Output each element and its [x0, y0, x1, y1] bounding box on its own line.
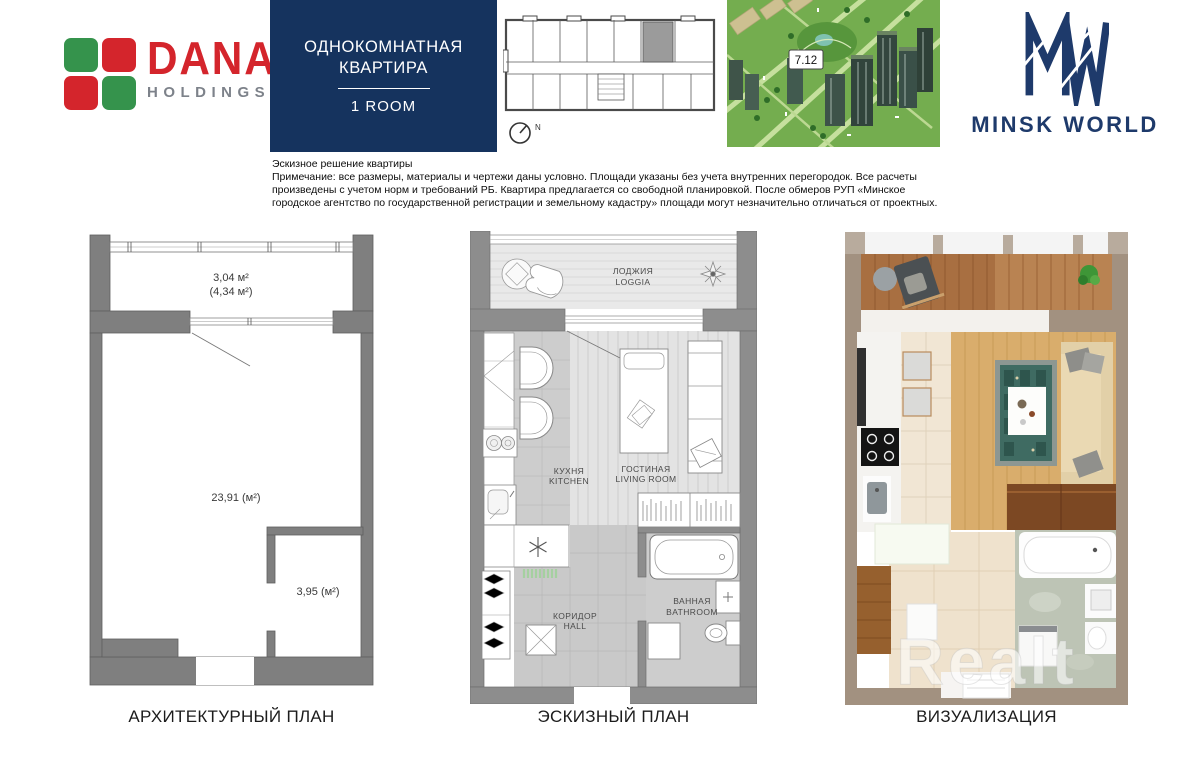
door-swing	[192, 333, 250, 366]
fridge-counter	[484, 525, 569, 567]
compass-north-label: N	[535, 123, 541, 132]
district-aerial-render: 7.12	[727, 0, 940, 147]
highlighted-unit	[643, 22, 673, 62]
flat-datasheet: DANA HOLDINGS ОДНОКОМНАТНАЯ КВАРТИРА 1 R…	[0, 0, 1197, 757]
bed	[620, 349, 668, 453]
mw-monogram-icon	[1021, 12, 1109, 106]
bathroom-label-ru: ВАННАЯ	[673, 596, 711, 606]
bathroom-area-value: 3,95 (м²)	[296, 586, 339, 598]
hall-label-en: HALL	[564, 621, 587, 631]
building-floor-plan: N	[503, 10, 722, 150]
balcony-window	[565, 316, 703, 323]
bathroom-washer	[648, 623, 680, 659]
kitchen-sink	[857, 466, 901, 532]
bathroom-sink	[716, 581, 740, 613]
stairwell	[598, 74, 624, 100]
bedroom-wardrobe	[1007, 484, 1116, 530]
coffee-table	[1008, 387, 1046, 435]
minsk-world-logo: MINSK WORLD	[985, 12, 1145, 138]
kitchen-label-ru: КУХНЯ	[554, 466, 584, 476]
sofa	[688, 341, 722, 473]
loggia-label-ru: ЛОДЖИЯ	[613, 266, 653, 276]
washing-machine	[526, 625, 556, 655]
loggia-area-value: 3,04 м²	[213, 272, 249, 284]
architectural-plan: 3,04 м² (4,34 м²) 23,91 (м²) 3,95 (м²)	[88, 233, 375, 700]
bathtub	[650, 535, 738, 579]
disclaimer-body: Примечание: все размеры, материалы и чер…	[272, 171, 948, 210]
minsk-world-wordmark: MINSK WORLD	[971, 112, 1159, 138]
tv-panel	[857, 348, 866, 426]
stove	[861, 428, 899, 466]
loggia-window	[110, 242, 353, 252]
entrance-door-opening	[574, 687, 630, 704]
hall-label-ru: КОРИДОР	[553, 611, 597, 621]
kitchen-island	[875, 524, 949, 564]
doormat	[524, 569, 556, 578]
realt-watermark: Realt	[896, 624, 1077, 698]
caption-sketch-plan: ЭСКИЗНЫЙ ПЛАН	[470, 707, 757, 727]
loggia-area-total-value: (4,34 м²)	[209, 286, 252, 298]
sketch-plan: ЛОДЖИЯ LOGGIA КУХНЯ KITCHEN ГОСТИНАЯ LIV…	[470, 231, 757, 704]
title-line-2: КВАРТИРА	[339, 58, 428, 79]
dana-squares-icon	[64, 38, 136, 110]
disclaimer: Эскизное решение квартиры Примечание: вс…	[272, 158, 948, 210]
title-line-1: ОДНОКОМНАТНАЯ	[304, 37, 463, 58]
kitchen-label-en: KITCHEN	[549, 476, 589, 486]
walls	[90, 235, 373, 685]
bathroom-label-en: BATHROOM	[666, 607, 718, 617]
loggia-table	[873, 267, 897, 291]
dana-holdings-logo: DANA HOLDINGS	[64, 38, 288, 110]
visualization-render: Realt	[845, 232, 1128, 705]
entrance-door-opening	[196, 657, 254, 685]
dana-logo-name: DANA	[147, 38, 277, 78]
living-label-ru: ГОСТИНАЯ	[621, 464, 670, 474]
caption-architectural-plan: АРХИТЕКТУРНЫЙ ПЛАН	[88, 707, 375, 727]
kitchen-sink	[484, 485, 516, 525]
main-room-area-value: 23,91 (м²)	[211, 492, 260, 504]
bookshelf	[638, 493, 740, 527]
loggia-glazing	[845, 232, 1128, 254]
loggia-label-en: LOGGIA	[616, 277, 651, 287]
hall-wardrobe	[857, 566, 891, 654]
sofa	[1061, 342, 1113, 484]
disclaimer-title: Эскизное решение квартиры	[272, 158, 948, 170]
balcony-window	[190, 318, 333, 325]
loggia-window	[490, 235, 737, 244]
block-number-badge: 7.12	[789, 50, 823, 69]
apartment-title-box: ОДНОКОМНАТНАЯ КВАРТИРА 1 ROOM	[270, 0, 497, 152]
living-label-en: LIVING ROOM	[615, 474, 676, 484]
caption-visualization: ВИЗУАЛИЗАЦИЯ	[845, 707, 1128, 727]
hall-wardrobe	[482, 571, 510, 659]
stove	[483, 429, 517, 457]
block-number-label: 7.12	[795, 55, 817, 67]
dana-logo-subtitle: HOLDINGS	[147, 84, 288, 101]
title-room-count: 1 ROOM	[351, 98, 416, 115]
title-divider	[338, 88, 430, 89]
kitchen-counter	[484, 333, 514, 489]
compass-icon: N	[510, 123, 541, 143]
